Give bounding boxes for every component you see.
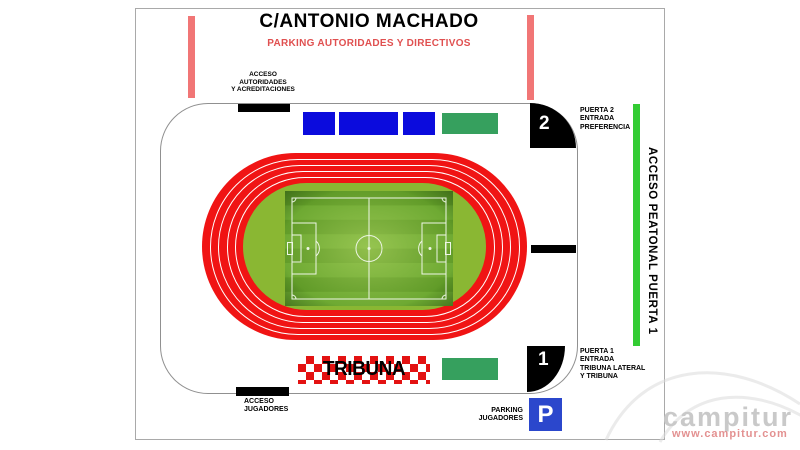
parking-symbol: P [537, 401, 553, 429]
tribuna-label: TRIBUNA [303, 358, 425, 381]
street-title: C/ANTONIO MACHADO [238, 11, 500, 33]
pedestrian-access-bar [633, 104, 640, 346]
pedestrian-access-label: ACCESO PEATONAL PUERTA 1 [646, 147, 658, 343]
stand-blue-3 [403, 112, 435, 135]
stand-blue-2 [339, 112, 398, 135]
stand-green-bottom [442, 358, 498, 380]
watermark-url: www.campitur.com [672, 428, 788, 440]
authorities-parking-label: PARKING AUTORIDADES Y DIRECTIVOS [238, 38, 500, 49]
parking-jugadores-label: PARKING JUGADORES [443, 407, 523, 424]
gate-1-number: 1 [538, 349, 549, 371]
acceso-autoridades-label: ACCESO AUTORIDADES Y ACREDITACIONES [213, 71, 313, 94]
gate-2-number: 2 [539, 113, 550, 135]
football-pitch [285, 191, 453, 306]
stand-green-top [442, 113, 498, 134]
stadium-access-map: C/ANTONIO MACHADO PARKING AUTORIDADES Y … [0, 0, 800, 450]
acceso-autoridades-gate [238, 104, 290, 112]
acceso-jugadores-label: ACCESO JUGADORES [244, 398, 288, 415]
stand-blue-1 [303, 112, 335, 135]
street-marker-left [188, 16, 195, 98]
acceso-jugadores-gate [236, 387, 289, 396]
street-marker-right [527, 15, 534, 100]
parking-icon: P [529, 398, 562, 431]
puerta-2-label: PUERTA 2 ENTRADA PREFERENCIA [580, 107, 630, 132]
zone-divider-wall [531, 245, 576, 253]
